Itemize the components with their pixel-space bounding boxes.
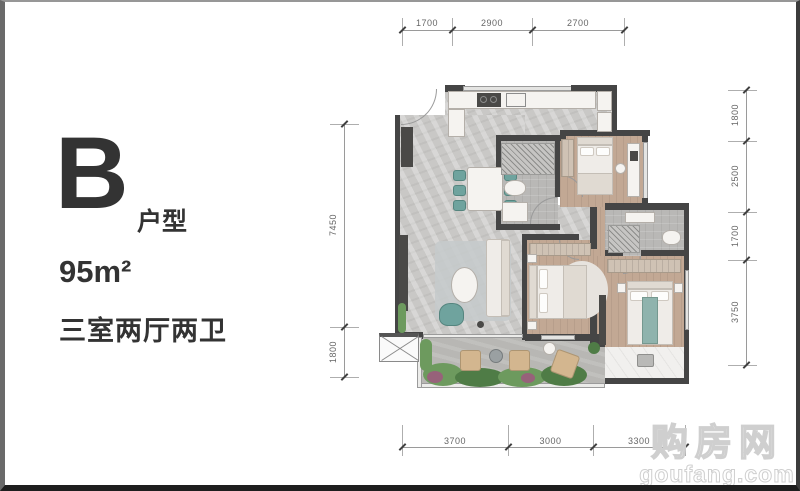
dining-table [467, 167, 503, 211]
bed-headboard [627, 281, 673, 289]
bed-blanket [577, 173, 613, 195]
coffee-table [451, 267, 478, 303]
bed-headboard [529, 265, 537, 319]
pillow [580, 147, 594, 156]
entry-cabinet [401, 127, 413, 167]
dim-label: 1800 [730, 95, 740, 135]
washer [597, 112, 612, 132]
dining-chair [453, 200, 466, 211]
ensuite-sink [625, 212, 655, 223]
bed-runner [642, 297, 658, 344]
tv-console [599, 295, 606, 345]
dining-chair [453, 185, 466, 196]
bed-headboard [577, 137, 613, 145]
dim-label: 2500 [730, 156, 740, 196]
plant-flower [521, 373, 535, 383]
dim-label: 1700 [402, 18, 452, 28]
pillow [539, 269, 548, 289]
wall [612, 85, 617, 135]
dim-line-right [746, 90, 747, 365]
dim-label: 1800 [328, 332, 338, 372]
sofa-back-cushions [501, 240, 510, 316]
dim-label: 3300 [593, 436, 685, 446]
shower [501, 143, 555, 175]
nightstand [617, 283, 626, 293]
balcony-slider [423, 334, 523, 338]
dim-label: 1700 [730, 216, 740, 256]
ac-unit-platform [379, 333, 419, 362]
outdoor-chair [509, 350, 530, 371]
ensuite-shower [608, 225, 640, 253]
bathroom-sink [502, 202, 528, 222]
nightstand [527, 321, 537, 330]
plant-flower [427, 371, 443, 383]
plan-area: 95m² [59, 254, 131, 290]
bedroom-window [643, 142, 648, 200]
wall [605, 378, 689, 384]
pillow [596, 147, 610, 156]
kitchen-cabinet [448, 109, 465, 137]
wardrobe [607, 259, 681, 273]
dining-chair [453, 170, 466, 181]
potted-plant [588, 342, 600, 354]
bay-window-table [637, 354, 654, 367]
plan-type-label: 户型 [137, 202, 187, 238]
nightstand [527, 254, 537, 263]
watermark-en: goufang.com [633, 461, 800, 488]
toilet [504, 180, 526, 196]
dim-ext [624, 18, 625, 46]
wall [555, 141, 560, 197]
dim-label: 7450 [328, 205, 338, 245]
floor-lamp [477, 321, 484, 328]
wall [496, 224, 560, 230]
kitchen-sink [506, 93, 526, 107]
outdoor-chair [460, 350, 481, 371]
wall [605, 203, 689, 210]
floor-plan-page: B 户型 95m² 三室两厅两卫 1700 2900 2700 1800 250… [0, 0, 800, 491]
dim-ext [685, 425, 686, 456]
wall [641, 250, 689, 256]
dim-label: 3700 [402, 436, 508, 446]
stove-burner [490, 96, 497, 103]
plan-rooms: 三室两厅两卫 [59, 309, 227, 348]
dim-line-bottom [402, 447, 685, 448]
watermark: 购房网 goufang.com [633, 424, 800, 488]
tv-console [399, 235, 408, 311]
stove-burner [480, 96, 487, 103]
bed-blanket [563, 265, 587, 319]
wall [642, 130, 648, 142]
desk-chair [615, 163, 626, 174]
floor-plan [393, 85, 693, 397]
accent-chair [439, 303, 464, 326]
dim-line-top [402, 30, 625, 31]
outdoor-table [489, 349, 503, 363]
plant [398, 303, 406, 333]
bedroom2-window [541, 335, 575, 340]
dim-label: 2900 [452, 18, 532, 28]
dim-label: 3750 [730, 292, 740, 332]
dim-line-left [344, 124, 345, 377]
plant [420, 339, 432, 371]
pillow [539, 293, 548, 313]
master-window [685, 270, 689, 330]
plan-letter: B [55, 122, 127, 224]
desk-laptop [630, 151, 638, 161]
nightstand [674, 283, 683, 293]
dim-label: 3000 [508, 436, 593, 446]
dim-label: 2700 [532, 18, 624, 28]
wardrobe [561, 139, 574, 177]
fridge [597, 91, 612, 111]
wall [590, 207, 597, 249]
outdoor-side-table [543, 342, 556, 355]
ensuite-toilet [662, 230, 681, 245]
wardrobe [529, 243, 591, 256]
